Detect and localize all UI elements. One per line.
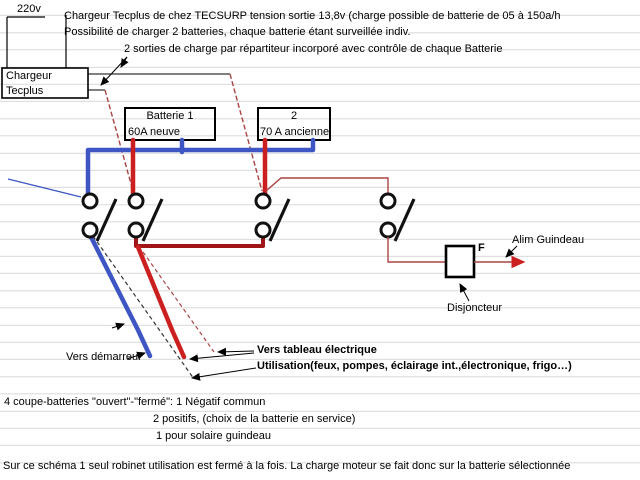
battery2-label: 2 70 A ancienne bbox=[258, 108, 330, 140]
alim-guindeau-label: Alim Guindeau bbox=[512, 234, 584, 247]
switch4-feed-wire bbox=[266, 178, 388, 193]
switch3-blade bbox=[270, 199, 289, 241]
switch2-blade bbox=[143, 199, 162, 241]
note-line2: 2 positifs, (choix de la batterie en ser… bbox=[153, 413, 355, 426]
header-line1: Chargeur Tecplus de chez TECSURP tension… bbox=[64, 10, 561, 23]
note-line1: 4 coupe-batteries "ouvert"-"fermé": 1 Né… bbox=[4, 396, 265, 409]
note-line3: 1 pour solaire guindeau bbox=[156, 430, 271, 443]
battery2-label-line1: 2 bbox=[258, 108, 330, 124]
positive-bus bbox=[136, 236, 263, 246]
switch2-top-terminal bbox=[129, 194, 143, 208]
header-line3: 2 sorties de charge par répartiteur inco… bbox=[124, 43, 503, 56]
footer-note: Sur ce schéma 1 seul robinet utilisation… bbox=[3, 460, 570, 473]
battery-switch-3 bbox=[256, 194, 289, 241]
battery1-label: Batterie 1 60A neuve bbox=[125, 108, 215, 140]
switch1-top-terminal bbox=[83, 194, 97, 208]
charger-label-line1: Chargeur bbox=[6, 69, 52, 84]
solar-negative-wire bbox=[8, 179, 81, 197]
switch4-top-terminal bbox=[381, 194, 395, 208]
switch4-blade bbox=[395, 199, 414, 241]
disjoncteur-label: Disjoncteur bbox=[447, 302, 502, 315]
battery-switch-4 bbox=[381, 194, 414, 241]
vers-tableau-label-line1: Vers tableau électrique bbox=[257, 344, 377, 357]
demarreur-arrow-2 bbox=[112, 324, 124, 328]
charger-label-line2: Tecplus bbox=[6, 84, 52, 99]
switch2-bottom-terminal bbox=[129, 223, 143, 237]
sorties-arrow-2 bbox=[101, 57, 127, 85]
battery1-label-line1: Batterie 1 bbox=[125, 108, 215, 124]
charger-label: Chargeur Tecplus bbox=[6, 69, 52, 99]
vers-tableau-label-line2: Utilisation(feux, pompes, éclairage int.… bbox=[257, 360, 572, 373]
battery2-label-line2: 70 A ancienne bbox=[258, 124, 330, 140]
wiring-diagram: 220v Chargeur Tecplus de chez TECSURP te… bbox=[0, 0, 640, 480]
vers-demarreur-label: Vers démarreur bbox=[66, 351, 142, 364]
tableau-arrow-1 bbox=[218, 351, 254, 352]
switch3-bottom-terminal bbox=[256, 223, 270, 237]
breaker-letter-label: F bbox=[478, 242, 485, 255]
switch1-bottom-terminal bbox=[83, 223, 97, 237]
disjoncteur-arrow bbox=[460, 284, 469, 301]
negative-bus bbox=[88, 140, 313, 194]
switch4-bottom-terminal bbox=[381, 223, 395, 237]
alim-guindeau-arrow bbox=[506, 246, 517, 257]
breaker-box bbox=[446, 246, 474, 277]
battery-switch-2 bbox=[129, 194, 162, 241]
tableau-arrow-2 bbox=[190, 353, 254, 359]
tableau-arrow-3 bbox=[192, 368, 256, 378]
switch3-top-terminal bbox=[256, 194, 270, 208]
header-line2: Possibilité de charger 2 batteries, chaq… bbox=[64, 26, 411, 39]
panel-positive-thin-wire bbox=[143, 252, 214, 352]
switch1-blade bbox=[97, 199, 116, 241]
supply-voltage-label: 220v bbox=[17, 3, 41, 16]
battery-switch-1 bbox=[83, 194, 116, 241]
battery1-label-line2: 60A neuve bbox=[125, 124, 215, 140]
